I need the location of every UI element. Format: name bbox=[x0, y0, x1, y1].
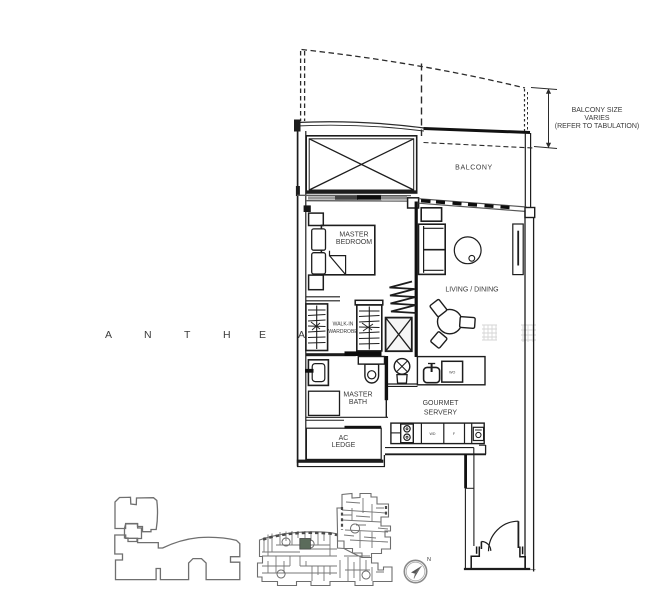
svg-text:VARIES: VARIES bbox=[584, 115, 609, 122]
svg-text:BEDROOM: BEDROOM bbox=[336, 239, 372, 246]
svg-text:BATH: BATH bbox=[349, 399, 367, 406]
svg-text:SERVERY: SERVERY bbox=[424, 410, 458, 417]
svg-text:LIVING / DINING: LIVING / DINING bbox=[445, 287, 498, 294]
svg-text:T: T bbox=[184, 329, 191, 341]
svg-text:(REFER TO TABULATION): (REFER TO TABULATION) bbox=[555, 123, 640, 130]
svg-text:AC: AC bbox=[339, 435, 349, 442]
svg-text:A: A bbox=[105, 329, 112, 341]
svg-text:H: H bbox=[223, 329, 231, 341]
svg-text:WALK-IN: WALK-IN bbox=[333, 322, 354, 328]
svg-text:BALCONY SIZE: BALCONY SIZE bbox=[572, 107, 623, 114]
svg-text:BALCONY: BALCONY bbox=[455, 165, 493, 172]
svg-text:MASTER: MASTER bbox=[339, 232, 368, 239]
svg-text:MASTER: MASTER bbox=[343, 392, 372, 399]
svg-text:A: A bbox=[298, 329, 305, 341]
svg-text:F: F bbox=[453, 432, 456, 436]
svg-text:N: N bbox=[427, 557, 431, 563]
svg-text:LEDGE: LEDGE bbox=[332, 442, 356, 449]
svg-text:N: N bbox=[144, 329, 152, 341]
svg-text:WD: WD bbox=[430, 432, 436, 436]
svg-text:GOURMET: GOURMET bbox=[423, 400, 460, 407]
svg-text:WO: WO bbox=[449, 371, 455, 375]
svg-text:WARDROBE: WARDROBE bbox=[328, 329, 358, 335]
svg-text:E: E bbox=[259, 329, 266, 341]
